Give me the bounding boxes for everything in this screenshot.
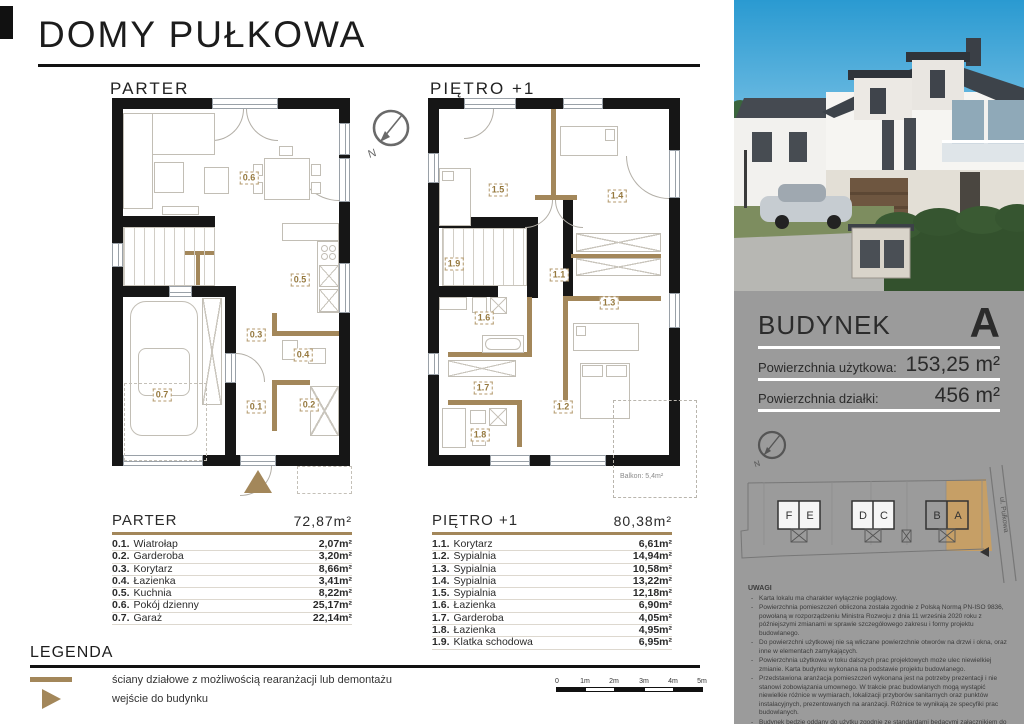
window [339, 123, 350, 155]
tv-cabinet [162, 206, 199, 215]
area-value: 456 m² [935, 384, 1000, 408]
svg-text:E: E [806, 510, 813, 522]
garage-door-opening [169, 286, 192, 297]
window [464, 98, 516, 109]
partition-wall [272, 385, 277, 431]
svg-text:A: A [954, 510, 962, 522]
porch-outline [297, 466, 352, 494]
room-label: 0.4 [294, 349, 313, 362]
kitchen-window [339, 263, 350, 313]
room-label: 0.3 [247, 329, 266, 342]
stairs [123, 227, 215, 286]
wardrobe [576, 233, 661, 252]
table-row: 0.6.Pokój dzienny25,17m² [112, 600, 352, 612]
sink [470, 410, 486, 424]
note-item: Do powierzchni użytkowej nie są wliczane… [748, 639, 1012, 656]
window [669, 293, 680, 328]
room-label: 1.9 [445, 258, 464, 271]
entrance-triangle-icon [244, 470, 272, 493]
room-label: 0.5 [291, 274, 310, 287]
window [563, 98, 603, 109]
svg-text:D: D [859, 510, 867, 522]
notes-title: UWAGI [748, 585, 1012, 594]
window [490, 455, 530, 466]
room-label: 1.2 [554, 401, 573, 414]
street: ul. Pułkowa [990, 465, 1016, 583]
svg-text:C: C [880, 510, 888, 522]
photo-sign-wall [848, 224, 914, 278]
scale-segment [674, 687, 703, 692]
area-label: Powierzchnia działki: [758, 391, 879, 408]
kitchen-counter [282, 223, 339, 241]
window [428, 353, 439, 375]
site-plan: N [734, 415, 1024, 583]
room-label: 1.3 [600, 297, 619, 310]
wall [112, 98, 123, 466]
table-row: 1.2.Sypialnia14,94m² [432, 551, 672, 563]
partition-wall [551, 109, 556, 195]
scale-segment [644, 687, 673, 692]
pillow [605, 129, 615, 141]
site-compass-icon: N [753, 432, 785, 469]
room-label: 1.7 [474, 382, 493, 395]
entrance-triangle-icon [42, 689, 61, 709]
scale-tick: 5m [697, 678, 707, 685]
window [112, 243, 123, 267]
corner-mark [0, 6, 13, 39]
hall-door [225, 353, 236, 383]
table-rule [112, 532, 352, 535]
entrance-door [240, 455, 276, 466]
svg-text:F: F [786, 510, 793, 522]
scale-tick: 1m [580, 678, 590, 685]
room-label: 0.6 [240, 172, 259, 185]
room-label: 1.8 [471, 429, 490, 442]
partition-wall [448, 400, 520, 405]
page-title: DOMY PUŁKOWA [38, 14, 366, 56]
partition-wall-line-icon [30, 677, 72, 682]
scale-segment [615, 687, 644, 692]
partition-wall [272, 380, 310, 385]
room-label: 1.6 [475, 312, 494, 325]
stove-burner [321, 245, 328, 252]
title-rule [38, 64, 700, 67]
door-arc [555, 200, 583, 228]
parter-heading: PARTER [110, 79, 189, 99]
scale-tick: 2m [609, 678, 619, 685]
building-panel: BUDYNEK A Powierzchnia użytkowa: 153,25 … [734, 291, 1024, 724]
partition-wall [517, 400, 522, 447]
partition-wall [272, 313, 277, 336]
scale-segment [556, 687, 585, 692]
chair [279, 146, 293, 156]
pillow [606, 365, 627, 377]
table-total-area: 72,87m² [294, 513, 352, 529]
patio-door [212, 98, 278, 109]
panel-rule [758, 409, 1000, 412]
window [428, 153, 439, 183]
dining-table [264, 158, 310, 200]
scale-tick: 3m [639, 678, 649, 685]
door-arc [236, 353, 265, 382]
building-letter: A [970, 305, 1000, 341]
scale-tick: 4m [668, 678, 678, 685]
balcony-outline [613, 400, 697, 498]
pillow [576, 326, 586, 336]
interior-wall [428, 286, 498, 297]
note-item: Karta lokalu ma charakter wyłącznie pogl… [748, 595, 1012, 604]
table-title: PARTER [112, 512, 177, 529]
garden-door [339, 158, 350, 202]
partition-wall [275, 331, 339, 336]
room-label: 0.1 [247, 401, 266, 414]
panel-rule [758, 378, 1000, 381]
brochure-page: DOMY PUŁKOWA PARTER PIĘTRO +1 N [0, 0, 1024, 724]
note-item: Powierzchnia pomieszczeń obliczona zosta… [748, 604, 1012, 638]
floor-plan-parter: 0.6 0.5 0.3 0.4 0.1 0.2 0.7 [112, 98, 350, 466]
compass-north-label: N [367, 147, 378, 161]
panel-rule [758, 346, 1000, 349]
panel-row: Powierzchnia działki: 456 m² [758, 384, 1000, 408]
door-arc [464, 109, 494, 139]
coffee-table [154, 162, 184, 193]
garage-stubs [791, 529, 955, 542]
wardrobe [448, 360, 516, 377]
notes-block: UWAGI Karta lokalu ma charakter wyłączni… [748, 585, 1012, 724]
photo-lamp-post [744, 150, 747, 208]
shower [442, 408, 466, 448]
chair [311, 182, 321, 194]
washer [489, 408, 507, 426]
note-item: Przedstawiona aranżacja pomieszczeń wyko… [748, 675, 1012, 718]
sofa [123, 113, 153, 209]
interior-wall [112, 216, 215, 227]
note-item: Powierzchnia użytkowa w toku dalszych pr… [748, 657, 1012, 674]
partition-wall [563, 301, 568, 400]
partition-wall [527, 297, 532, 355]
note-item: Budynek będzie oddany do użytku zgodnie … [748, 719, 1012, 724]
scale-tick: 0 [555, 678, 559, 685]
stove-burner [321, 253, 328, 260]
wardrobe [576, 258, 661, 276]
coffee-table [204, 167, 229, 194]
panel-row: Powierzchnia użytkowa: 153,25 m² [758, 353, 1000, 377]
table-row: 0.2.Garderoba3,20m² [112, 551, 352, 563]
door-arc [212, 109, 244, 141]
door-arc [246, 109, 278, 141]
sink [439, 297, 467, 310]
legend-rule [30, 665, 700, 668]
balcony-slider [550, 455, 606, 466]
svg-text:B: B [933, 510, 940, 522]
balcony-label: Balkon: 5,4m² [620, 473, 663, 480]
table-total-area: 80,38m² [614, 513, 672, 529]
scale-bar: 0 1m 2m 3m 4m 5m [556, 678, 704, 694]
bathtub-basin [485, 338, 521, 350]
stove-burner [329, 245, 336, 252]
interior-wall [527, 228, 538, 298]
floor-plan-pietro: Balkon: 5,4m² 1.5 1.4 1.9 1.1 1.6 1.3 1.… [428, 98, 680, 466]
pillow [582, 365, 603, 377]
door-arc [525, 200, 553, 228]
room-label: 0.2 [300, 399, 319, 412]
door-arc [626, 156, 669, 199]
parter-room-table: PARTER 72,87m² 0.1.Wiatrołap2,07m² 0.2.G… [112, 512, 352, 625]
legend-title: LEGENDA [30, 644, 700, 662]
stove-burner [329, 253, 336, 260]
house-photo [734, 0, 1024, 291]
compass-north-label: N [753, 459, 761, 469]
room-label: 1.1 [550, 269, 569, 282]
legend-item-label: ściany działowe z możliwością rearanżacj… [112, 674, 392, 686]
table-rule [432, 532, 672, 535]
room-label: 0.7 [153, 389, 172, 402]
table-row: 0.7.Garaż22,14m² [112, 613, 352, 625]
kitchen-appliance [319, 289, 339, 312]
legend-item-label: wejście do budynku [112, 693, 208, 705]
room-label: 1.5 [489, 184, 508, 197]
area-value: 153,25 m² [905, 353, 1000, 377]
kitchen-appliance [319, 265, 339, 287]
pietro-room-table: PIĘTRO +1 80,38m² 1.1.Korytarz6,61m² 1.2… [432, 512, 672, 650]
chair [311, 164, 321, 176]
scale-segment [585, 687, 614, 692]
pillow [442, 171, 454, 181]
area-label: Powierzchnia użytkowa: [758, 360, 897, 377]
table-row: 1.6.Łazienka6,90m² [432, 600, 672, 612]
room-label: 1.4 [608, 190, 627, 203]
balcony-door [669, 150, 680, 198]
street-label: ul. Pułkowa [998, 497, 1009, 533]
table-title: PIĘTRO +1 [432, 512, 518, 529]
building-name-label: BUDYNEK [758, 310, 891, 341]
compass-icon: N [360, 100, 420, 168]
pietro-heading: PIĘTRO +1 [430, 79, 535, 99]
